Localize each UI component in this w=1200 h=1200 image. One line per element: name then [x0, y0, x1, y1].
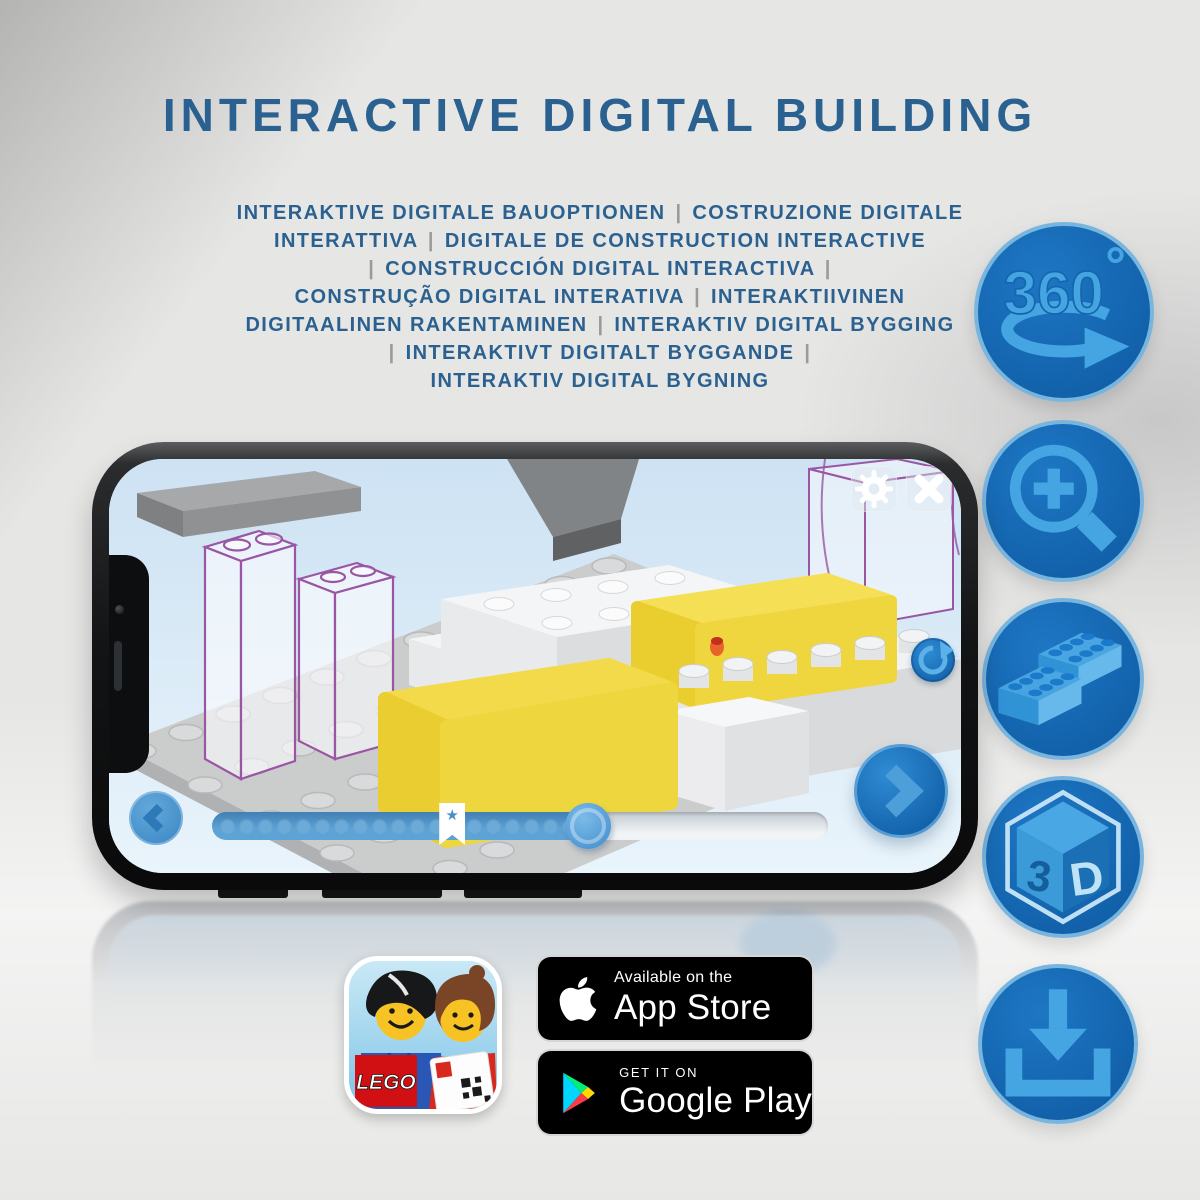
magnifier-plus-icon: [986, 424, 1140, 578]
next-step-button[interactable]: [854, 744, 948, 838]
build-progress-slider[interactable]: ★: [212, 812, 828, 840]
progress-dot: [353, 819, 368, 834]
app-store-tagline: Available on the: [614, 969, 771, 987]
feature-360-rotation: 360 °: [974, 222, 1154, 402]
progress-dot: [334, 819, 349, 834]
degree-symbol: °: [1105, 236, 1126, 294]
lego-app-icon[interactable]: LEGO: [344, 956, 502, 1114]
pipe-separator: |: [425, 230, 438, 252]
poster: INTERACTIVE DIGITAL BUILDING INTERAKTIVE…: [0, 0, 1200, 1200]
settings-button[interactable]: [851, 466, 897, 512]
cube-d-label: D: [1067, 850, 1107, 906]
progress-dot: [315, 819, 330, 834]
google-play-icon: [558, 1070, 603, 1116]
slider-handle[interactable]: [565, 803, 611, 849]
progress-fill: [212, 812, 588, 840]
progress-dot: [220, 819, 235, 834]
camera-notch: [109, 555, 149, 773]
subtitle-line: INTERAKTIV DIGITAL BYGNING: [180, 367, 1020, 395]
progress-dot: [486, 819, 501, 834]
progress-dot: [410, 819, 425, 834]
speaker-grille: [114, 641, 122, 691]
google-play-tagline: GET IT ON: [619, 1065, 812, 1080]
lego-app-artwork: LEGO: [349, 961, 497, 1109]
progress-dot: [277, 819, 292, 834]
app-store-label: App Store: [614, 988, 771, 1028]
subtitle-line: | CONSTRUCCIÓN DIGITAL INTERACTIVA |: [180, 255, 1020, 283]
subtitle-line: | INTERAKTIVT DIGITALT BYGGANDE |: [180, 339, 1020, 367]
progress-dot: [524, 819, 539, 834]
star-icon: ★: [446, 807, 459, 824]
close-icon: [906, 466, 952, 512]
pipe-separator: |: [672, 202, 685, 224]
3d-cube-icon: 3 D: [986, 780, 1140, 934]
subtitle-line: INTERATTIVA | DIGITALE DE CONSTRUCTION I…: [180, 227, 1020, 255]
360-label: 360: [1003, 260, 1103, 327]
google-play-badge[interactable]: GET IT ON Google Play: [538, 1051, 812, 1134]
previous-step-button[interactable]: [129, 791, 183, 845]
feature-bricks: [982, 598, 1144, 760]
feature-3d-view: 3 D: [982, 776, 1144, 938]
progress-dot: [467, 819, 482, 834]
chevron-left-icon: [129, 791, 183, 845]
subtitle-line: INTERAKTIVE DIGITALE BAUOPTIONEN | COSTR…: [180, 199, 1020, 227]
pipe-separator: |: [691, 286, 704, 308]
reset-rotation-button[interactable]: [911, 638, 955, 682]
feature-download: [978, 964, 1138, 1124]
pipe-separator: |: [386, 342, 399, 364]
progress-dot: [239, 819, 254, 834]
progress-dot: [391, 819, 406, 834]
progress-dot: [505, 819, 520, 834]
lego-bricks-icon: [986, 602, 1140, 756]
subtitle-translations: INTERAKTIVE DIGITALE BAUOPTIONEN | COSTR…: [180, 199, 1020, 395]
close-button[interactable]: [906, 466, 952, 512]
360-rotation-icon: 360 °: [978, 226, 1150, 398]
pipe-separator: |: [822, 258, 835, 280]
phone-mockup: ★: [92, 442, 978, 890]
rotate-arrow-icon: [911, 638, 955, 682]
progress-dot: [258, 819, 273, 834]
subtitle-line: DIGITAALINEN RAKENTAMINEN | INTERAKTIV D…: [180, 311, 1020, 339]
progress-dot: [296, 819, 311, 834]
pipe-separator: |: [594, 314, 607, 336]
pipe-separator: |: [365, 258, 378, 280]
gear-icon: [851, 466, 897, 512]
app-store-badge[interactable]: Available on the App Store: [538, 957, 812, 1040]
chevron-right-icon: [857, 747, 945, 835]
subtitle-line: CONSTRUÇÃO DIGITAL INTERATIVA | INTERAKT…: [180, 283, 1020, 311]
progress-dot: [372, 819, 387, 834]
lego-model-render: [109, 459, 961, 873]
page-title: INTERACTIVE DIGITAL BUILDING: [0, 88, 1200, 142]
phone-reflection: [92, 901, 978, 1111]
feature-zoom: [982, 420, 1144, 582]
front-camera: [115, 605, 124, 614]
google-play-label: Google Play: [619, 1081, 812, 1121]
progress-dot: [543, 819, 558, 834]
download-icon: [982, 968, 1134, 1120]
pipe-separator: |: [801, 342, 814, 364]
apple-icon: [558, 974, 598, 1024]
phone-screen: ★: [109, 459, 961, 873]
lego-logo: LEGO: [356, 1071, 416, 1094]
